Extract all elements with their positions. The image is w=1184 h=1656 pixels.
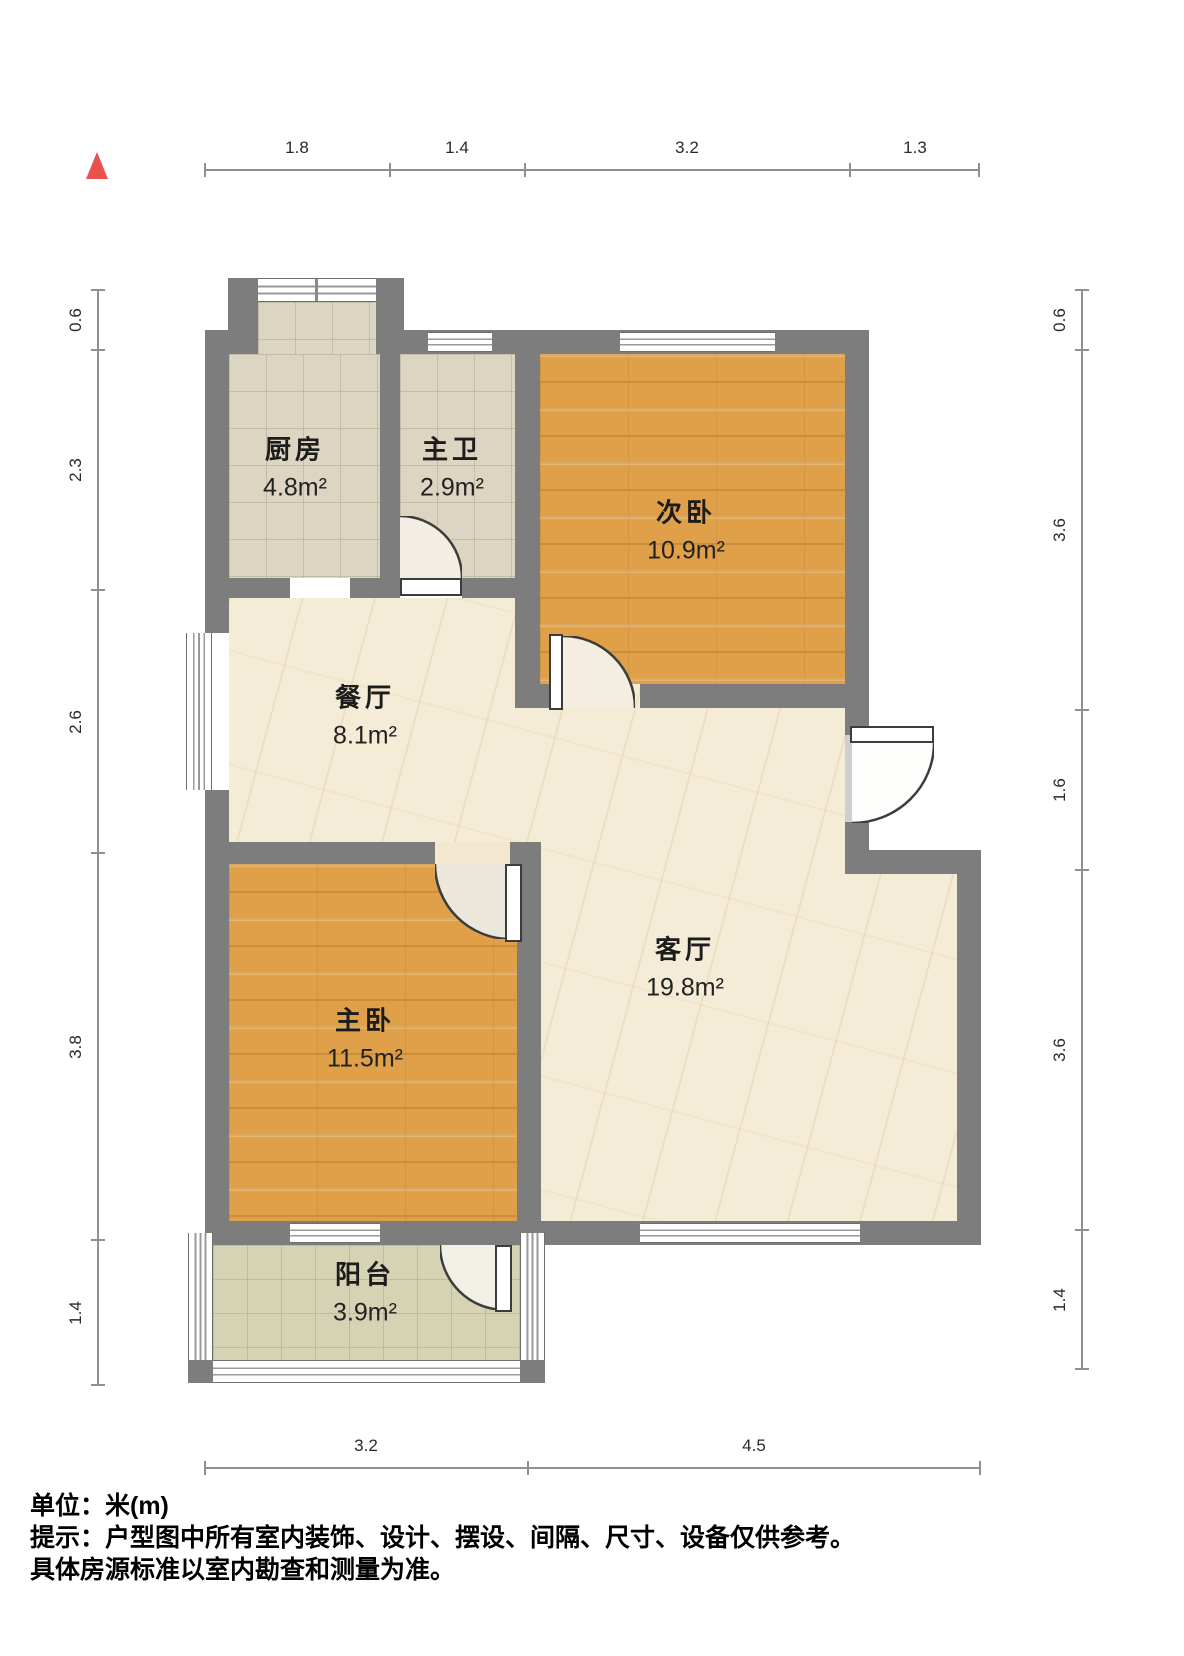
room-name: 阳台 [333, 1255, 397, 1292]
dim-left-5: 1.4 [66, 1301, 86, 1325]
dim-bottom-2: 4.5 [742, 1436, 766, 1456]
dining-room-window [186, 633, 212, 790]
room-label-kitchen: 厨房 4.8m² [263, 430, 327, 503]
dim-right-5: 1.4 [1050, 1288, 1070, 1312]
dim-tick [1075, 349, 1089, 351]
room-name: 客厅 [646, 930, 724, 967]
dim-tick [91, 289, 105, 291]
dim-top-2: 1.4 [445, 138, 469, 158]
kitchen-bay-window [258, 278, 376, 302]
wall-kitchen-bath-divider [380, 354, 400, 598]
second-bedroom-window [620, 332, 775, 352]
master-bath-door-leaf [400, 578, 462, 596]
dim-tick [204, 163, 206, 177]
master-bath-window [428, 332, 492, 352]
dim-tick [91, 1384, 105, 1386]
balcony-window-right [520, 1233, 545, 1360]
room-name: 餐厅 [333, 678, 397, 715]
window-mullion [315, 279, 318, 301]
dim-top-3: 3.2 [675, 138, 699, 158]
room-label-second-bedroom: 次卧 10.9m² [647, 493, 725, 566]
room-area: 19.8m² [646, 974, 724, 1003]
room-name: 厨房 [263, 430, 327, 467]
north-arrow-icon [86, 152, 108, 179]
room-area: 10.9m² [647, 537, 725, 566]
dim-tick [1075, 1368, 1089, 1370]
wall-kitchen-bottom-b [350, 578, 400, 598]
wall-kitchen-bay-left [228, 302, 258, 334]
dim-tick [91, 589, 105, 591]
dim-tick [849, 163, 851, 177]
master-bedroom-door-leaf [505, 864, 522, 942]
room-area: 2.9m² [420, 474, 484, 503]
dim-tick [979, 1461, 981, 1475]
room-name: 主卧 [327, 1001, 403, 1038]
dim-tick [1075, 709, 1089, 711]
dim-tick [91, 349, 105, 351]
dim-tick [204, 1461, 206, 1475]
room-area: 8.1m² [333, 722, 397, 751]
living-room-window [640, 1223, 860, 1243]
master-bedroom-balcony-window [290, 1223, 380, 1243]
dim-tick [1075, 869, 1089, 871]
wall-kitchen-bottom-a [229, 578, 290, 598]
room-label-balcony: 阳台 3.9m² [333, 1255, 397, 1328]
balcony-window-left [188, 1233, 213, 1360]
wall-right-lower [957, 850, 981, 1245]
entry-door-swing [852, 743, 934, 823]
dim-right-3: 1.6 [1050, 778, 1070, 802]
dim-top-4: 1.3 [903, 138, 927, 158]
dim-left-1: 0.6 [66, 308, 86, 332]
wall-bath-bedroom2-divider [515, 354, 540, 684]
dimension-line-right [1081, 290, 1083, 1370]
room-area: 4.8m² [263, 474, 327, 503]
room-name: 主卫 [420, 430, 484, 467]
wall-bedroom2-bottom-b [640, 684, 869, 708]
dim-tick [389, 163, 391, 177]
dim-tick [527, 1461, 529, 1475]
wall-left-upper [205, 330, 229, 633]
dim-tick [1075, 289, 1089, 291]
second-bedroom-door-leaf [549, 634, 563, 710]
room-label-master-bath: 主卫 2.9m² [420, 430, 484, 503]
dimension-line-bottom [205, 1467, 981, 1469]
dim-tick [1075, 1229, 1089, 1231]
balcony-window-bottom [213, 1360, 520, 1383]
footer-notice-line1: 提示：户型图中所有室内装饰、设计、摆设、间隔、尺寸、设备仅供参考。 [30, 1518, 855, 1554]
room-area: 3.9m² [333, 1299, 397, 1328]
room-name: 次卧 [647, 493, 725, 530]
dim-bottom-1: 3.2 [354, 1436, 378, 1456]
floorplan-page: 厨房 4.8m² 主卫 2.9m² 次卧 10.9m² 餐厅 8.1m² 客厅 … [0, 0, 1184, 1656]
entry-door-leaf [850, 726, 934, 743]
balcony-corner-post-right [520, 1360, 545, 1383]
master-bedroom-door-opening [435, 842, 510, 864]
footer-notice-line2: 具体房源标准以室内勘查和测量为准。 [30, 1550, 455, 1586]
floor-kitchen-bay [258, 302, 376, 354]
dim-tick [91, 852, 105, 854]
dimension-line-left [97, 290, 99, 1386]
dimension-line-top [205, 169, 980, 171]
master-bedroom-door-swing [435, 864, 510, 939]
room-label-living-room: 客厅 19.8m² [646, 930, 724, 1003]
dim-right-1: 0.6 [1050, 308, 1070, 332]
room-label-master-bedroom: 主卧 11.5m² [327, 1001, 403, 1074]
balcony-door-leaf [495, 1245, 512, 1312]
dim-right-4: 3.6 [1050, 1038, 1070, 1062]
dim-top-1: 1.8 [285, 138, 309, 158]
dim-right-2: 3.6 [1050, 518, 1070, 542]
room-label-dining-room: 餐厅 8.1m² [333, 678, 397, 751]
balcony-corner-post-left [188, 1360, 213, 1383]
dim-tick [524, 163, 526, 177]
dim-tick [91, 1239, 105, 1241]
footer-unit-label: 单位：米(m) [30, 1486, 169, 1522]
second-bedroom-door-swing [563, 636, 635, 708]
dim-left-4: 3.8 [66, 1035, 86, 1059]
room-area: 11.5m² [327, 1045, 403, 1074]
master-bath-door-swing [400, 516, 462, 578]
dim-left-3: 2.6 [66, 710, 86, 734]
dim-left-2: 2.3 [66, 458, 86, 482]
wall-kitchen-bay-right [376, 302, 404, 334]
dim-tick [978, 163, 980, 177]
wall-dining-master-a [205, 842, 435, 864]
